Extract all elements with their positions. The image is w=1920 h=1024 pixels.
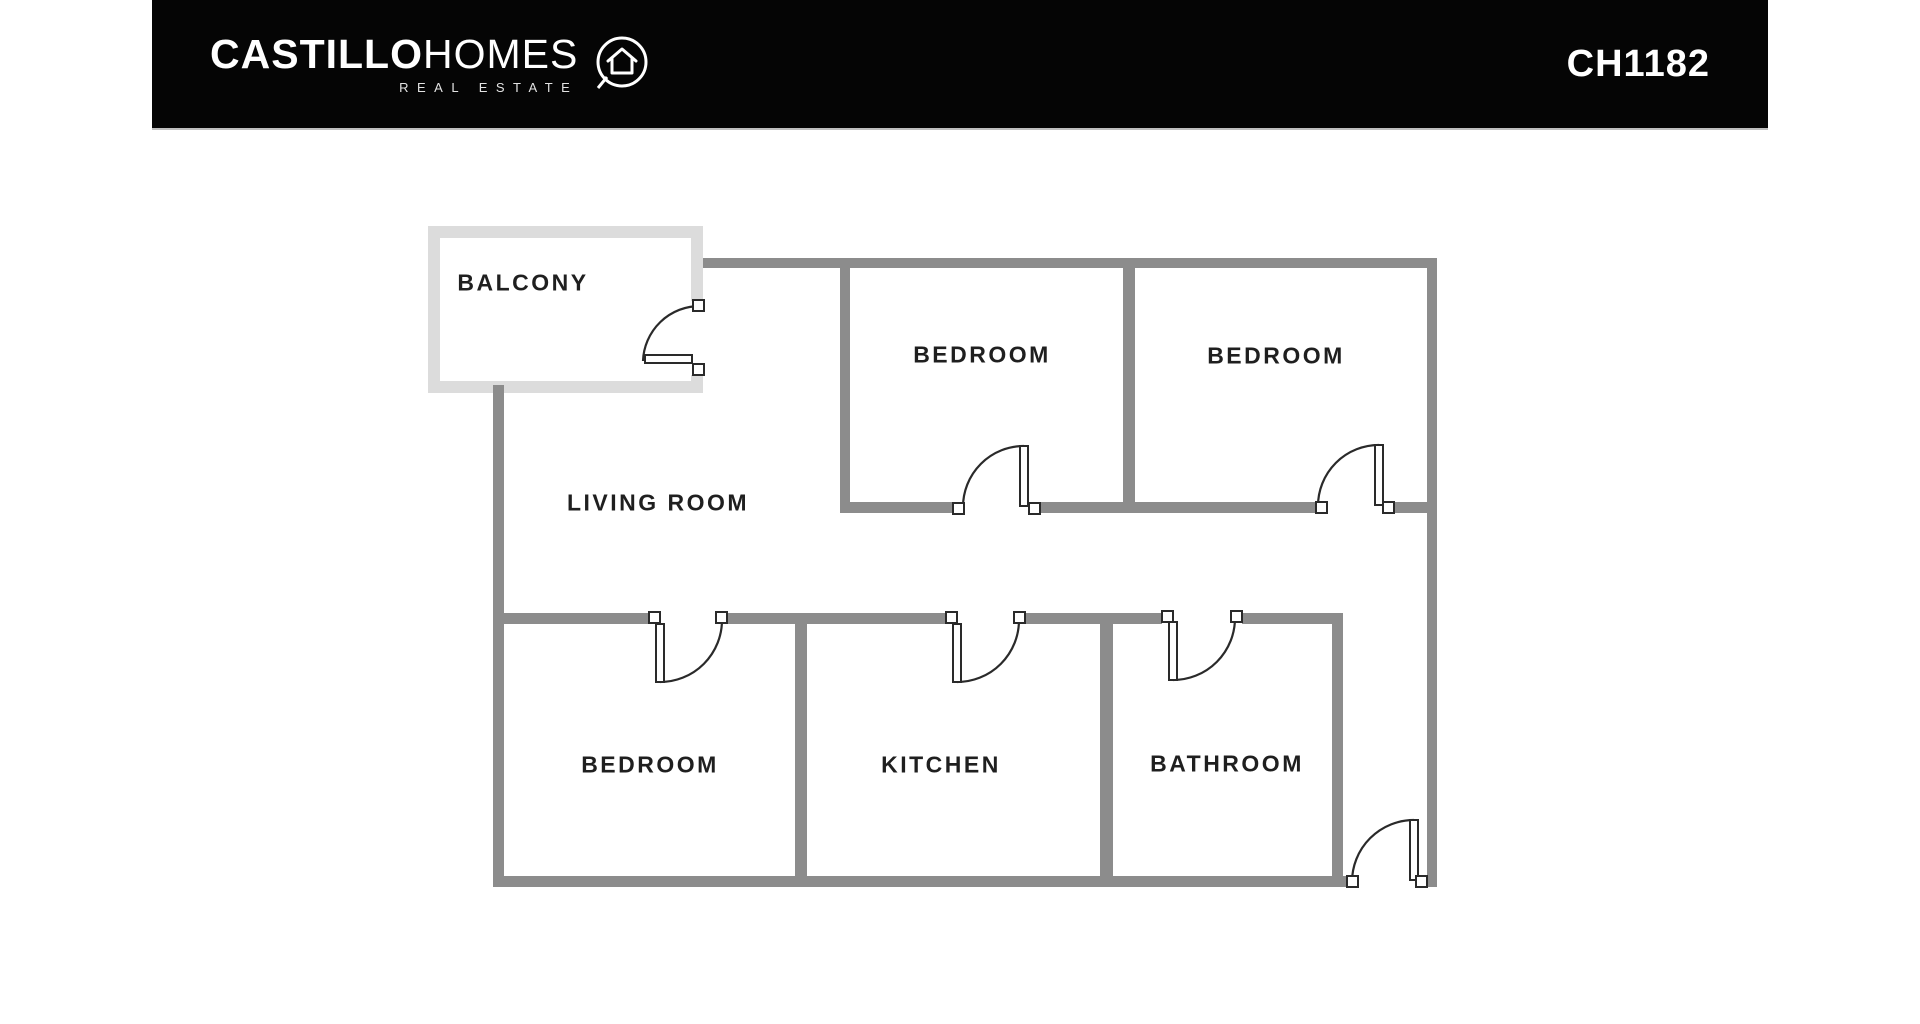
room-label-living-room: LIVING ROOM — [567, 490, 749, 517]
door-arc-bedroom3 — [660, 620, 722, 682]
room-label-bedroom-1: BEDROOM — [913, 342, 1051, 369]
door-leaf-bedroom3 — [656, 624, 664, 682]
wall-bathroom-right — [1332, 613, 1343, 887]
door-leaf-kitchen — [953, 624, 961, 682]
door-leaf-bedroom2 — [1375, 445, 1383, 505]
wall-right — [1427, 258, 1437, 887]
door-arc-bedroom1 — [963, 446, 1024, 507]
door-arc-bathroom — [1173, 618, 1235, 680]
door-arc-entry — [1352, 820, 1414, 882]
door-jambs — [649, 300, 1427, 887]
room-label-bedroom-2: BEDROOM — [1207, 343, 1345, 370]
wall-bottom — [493, 876, 1348, 887]
door-arc-balcony — [643, 306, 700, 361]
door-arc-bedroom2 — [1318, 445, 1379, 506]
room-label-kitchen: KITCHEN — [881, 752, 1001, 779]
wall-kitchen-bathroom-divider — [1100, 624, 1113, 876]
wall-top — [703, 258, 1437, 268]
wall-left — [493, 385, 504, 887]
floor-plan: BALCONY LIVING ROOM BEDROOM BEDROOM BEDR… — [0, 0, 1920, 1024]
balcony-walls — [428, 226, 703, 393]
door-leaf-bedroom1 — [1020, 446, 1028, 506]
door-leaf-balcony — [645, 355, 692, 363]
door-arcs — [643, 306, 1414, 882]
door-arc-kitchen — [957, 620, 1019, 682]
wall-bedroom3-kitchen-divider — [795, 624, 807, 876]
floor-plan-drawing — [0, 0, 1920, 1024]
room-label-bathroom: BATHROOM — [1150, 751, 1304, 778]
wall-bedrooms-divider — [1123, 268, 1135, 513]
door-leaf-bathroom — [1169, 622, 1177, 680]
wall-bedroom1-left — [840, 268, 850, 513]
door-leaf-entry — [1410, 820, 1418, 880]
room-label-balcony: BALCONY — [457, 270, 588, 297]
room-label-bedroom-3: BEDROOM — [581, 752, 719, 779]
